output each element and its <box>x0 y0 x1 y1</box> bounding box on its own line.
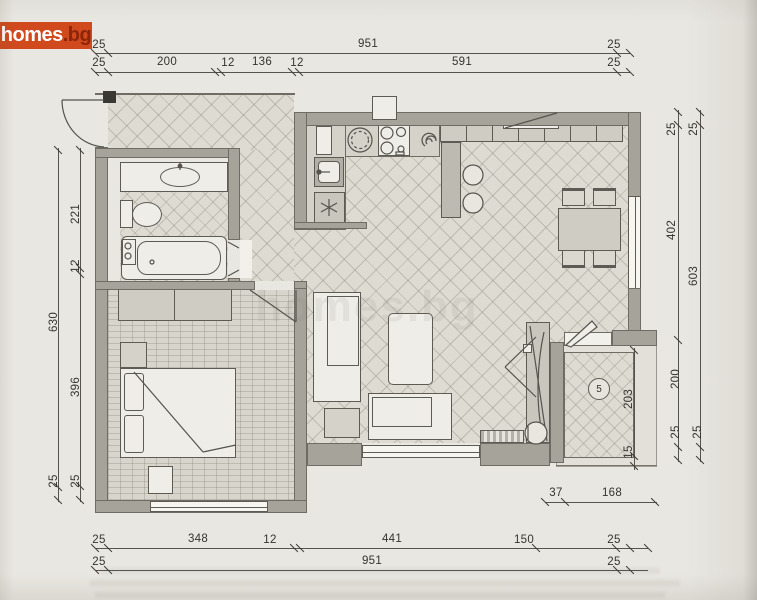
entry-door-block <box>103 91 116 103</box>
dimension-tick <box>76 146 84 154</box>
balcony-number-icon: 5 <box>588 378 610 400</box>
wall-bottom-living-right <box>480 443 550 466</box>
balcony-number: 5 <box>596 384 602 395</box>
bedroom-window <box>150 501 268 512</box>
dimension-label: 25 <box>48 474 60 487</box>
bath-sink <box>160 167 200 187</box>
bedroom-table <box>148 466 173 494</box>
wall-left-outer <box>95 147 108 513</box>
dimension-label: 221 <box>70 204 82 224</box>
side-table <box>324 408 360 438</box>
bath-taps <box>122 239 136 265</box>
dimension-label: 396 <box>70 377 82 397</box>
dimension-line <box>95 72 630 73</box>
dimension-tick <box>674 336 682 344</box>
dimension-tick <box>612 544 620 552</box>
dimension-tick <box>54 496 62 504</box>
dimension-tick <box>288 68 296 76</box>
living-window-right <box>628 196 641 290</box>
watermark: homes.bg <box>255 282 479 332</box>
dimension-tick <box>696 456 704 464</box>
boiler-icon <box>372 96 397 120</box>
dimension-tick <box>295 68 303 76</box>
dimension-label: 25 <box>607 556 620 568</box>
kitchen-fridge-gap <box>316 126 332 155</box>
dimension-tick <box>613 68 621 76</box>
kitchen-counter-return <box>294 222 367 229</box>
dimension-label: 402 <box>666 220 678 240</box>
dimension-line <box>95 548 648 549</box>
dimension-tick <box>651 498 659 506</box>
dimension-tick <box>561 498 569 506</box>
dining-table <box>558 208 621 251</box>
dimension-tick <box>674 121 682 129</box>
wardrobe-divider <box>174 285 175 321</box>
dimension-tick <box>76 496 84 504</box>
dimension-tick <box>91 68 99 76</box>
dimension-label: 591 <box>452 56 472 68</box>
dimension-tick <box>91 544 99 552</box>
living-window-bottom <box>362 445 480 458</box>
dimension-label: 25 <box>92 39 105 51</box>
dimension-tick <box>76 482 84 490</box>
toilet-bowl <box>132 202 162 227</box>
dimension-label: 951 <box>358 38 378 50</box>
dimension-line <box>80 148 81 502</box>
bathroom-door-opening <box>240 240 252 278</box>
dimension-label: 25 <box>70 474 82 487</box>
dimension-label: 441 <box>382 533 402 545</box>
scan-ghost-line <box>90 580 680 586</box>
bathtub-inner <box>137 241 221 275</box>
bar-counter <box>441 142 461 218</box>
dimension-tick <box>696 108 704 116</box>
wall-bath-top <box>95 148 240 158</box>
dimension-label: 12 <box>290 57 303 69</box>
wall-top-outer <box>294 112 641 126</box>
scan-ghost-line <box>95 592 665 598</box>
wall-bath-right <box>228 148 240 240</box>
dimension-label: 150 <box>514 534 534 546</box>
dimension-label: 136 <box>252 56 272 68</box>
homes-bg-logo: homes.bg <box>0 22 92 49</box>
wall-bedroom-top <box>95 281 255 290</box>
closet-handle <box>523 344 532 353</box>
balcony-door-opening <box>564 332 612 346</box>
dimension-label: 12 <box>221 57 234 69</box>
dimension-label: 630 <box>48 312 60 332</box>
dimension-label: 25 <box>666 122 678 135</box>
logo-suffix: .bg <box>63 24 92 47</box>
dimension-tick <box>532 544 540 552</box>
entry-hall-floor <box>108 95 294 150</box>
dimension-tick <box>696 121 704 129</box>
pillow <box>124 415 144 453</box>
dimension-label: 37 <box>549 487 562 499</box>
floorplan-page: homes.bg <box>0 0 757 600</box>
logo-main: homes <box>1 24 63 47</box>
dimension-tick <box>76 270 84 278</box>
dining-chair <box>562 188 585 206</box>
dining-chair <box>593 250 616 268</box>
dimension-label: 25 <box>607 534 620 546</box>
dimension-tick <box>104 544 112 552</box>
dimension-label: 25 <box>607 39 620 51</box>
dimension-tick <box>674 456 682 464</box>
wall-kitchen-left <box>294 112 307 230</box>
dimension-line <box>95 53 630 54</box>
wall-balcony-top <box>612 330 657 346</box>
dimension-label: 12 <box>263 534 276 546</box>
dimension-label: 348 <box>188 533 208 545</box>
dimension-line <box>700 110 701 462</box>
dimension-line <box>58 148 59 502</box>
dimension-line <box>678 110 679 462</box>
sofa-horizontal-cushions <box>372 397 432 427</box>
dimension-tick <box>626 544 634 552</box>
dimension-tick <box>54 146 62 154</box>
dimension-label: 25 <box>92 556 105 568</box>
entry-door-swing <box>62 100 104 147</box>
dimension-label: 25 <box>92 57 105 69</box>
dining-chair <box>562 250 585 268</box>
dimension-tick <box>104 49 112 57</box>
pillow <box>124 373 144 411</box>
hall-closet <box>526 322 550 443</box>
dimension-label: 951 <box>362 555 382 567</box>
dining-chair <box>593 188 616 206</box>
balcony-floor <box>564 352 634 458</box>
dimension-label: 25 <box>670 425 682 438</box>
dimension-label: 25 <box>688 122 700 135</box>
dimension-tick <box>296 544 304 552</box>
stove <box>378 124 410 156</box>
scan-ghost-line <box>100 568 660 574</box>
entry-top-line <box>95 93 295 95</box>
dimension-tick <box>104 68 112 76</box>
nightstand <box>120 342 147 368</box>
wall-right-upper <box>628 112 641 198</box>
dimension-label: 603 <box>688 266 700 286</box>
dimension-tick <box>613 49 621 57</box>
dimension-tick <box>217 68 225 76</box>
living-radiator <box>480 430 524 443</box>
dimension-tick <box>54 483 62 491</box>
bathroom-door-swing <box>228 242 239 276</box>
kitchen-sink-bowl <box>318 161 340 183</box>
dimension-label: 25 <box>692 425 704 438</box>
dimension-label: 168 <box>602 487 622 499</box>
dimension-line <box>545 502 657 503</box>
dimension-tick <box>541 498 549 506</box>
dimension-tick <box>91 49 99 57</box>
dimension-label: 200 <box>157 56 177 68</box>
dimension-tick <box>211 68 219 76</box>
dimension-tick <box>644 544 652 552</box>
dimension-label: 200 <box>670 369 682 389</box>
dimension-tick <box>696 443 704 451</box>
bedroom-wardrobe <box>118 285 232 321</box>
wall-bottom-living-left <box>307 443 362 466</box>
dimension-tick <box>626 68 634 76</box>
dimension-tick <box>674 443 682 451</box>
dimension-tick <box>626 49 634 57</box>
dimension-label: 25 <box>92 534 105 546</box>
dimension-label: 12 <box>70 259 82 272</box>
washing-machine <box>314 192 345 223</box>
dimension-tick <box>674 108 682 116</box>
wall-balcony-left <box>550 342 564 463</box>
dimension-tick <box>290 544 298 552</box>
dimension-label: 25 <box>607 57 620 69</box>
dimension-tick <box>76 264 84 272</box>
dimension-tick <box>91 566 99 574</box>
